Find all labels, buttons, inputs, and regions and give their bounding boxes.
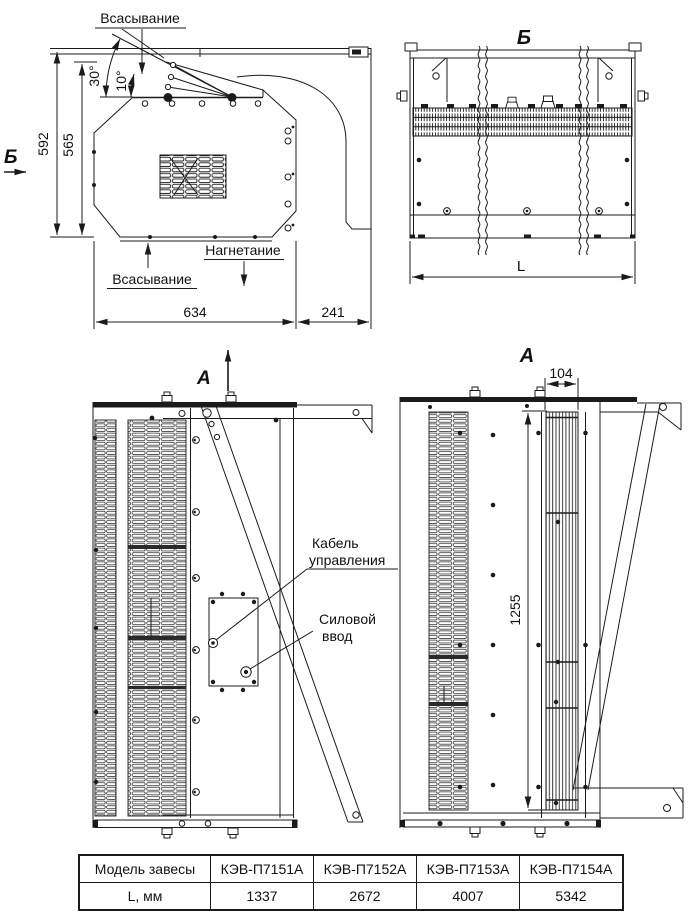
view-a-title: А — [519, 345, 534, 367]
dim-1255-text: 1255 — [507, 594, 523, 625]
va-brace — [573, 404, 660, 790]
control-cable-line2: управления — [309, 552, 385, 568]
right-bolt — [638, 91, 648, 101]
view-b-title: Б — [517, 27, 531, 49]
table-value-2: 2672 — [314, 883, 417, 911]
dim-104-text: 104 — [549, 365, 573, 381]
drawing-canvas: 30° 10° Всасывание — [0, 0, 700, 854]
power-inlet-line1: Силовой — [319, 611, 376, 627]
power-inlet-label: Силовой ввод — [250, 611, 376, 669]
suction-top-text: Всасывание — [100, 10, 180, 26]
front-body — [93, 402, 294, 828]
side-view: 30° 10° Всасывание — [4, 10, 371, 329]
dim-104: 104 — [545, 365, 578, 410]
dim-592-text: 592 — [35, 132, 51, 156]
view-b-marker: Б — [4, 147, 26, 172]
discharge-text: Нагнетание — [205, 242, 281, 258]
suction-bottom-text: Всасывание — [112, 271, 192, 287]
front-view: Кабель управления Силовой ввод — [93, 392, 398, 838]
table-header-row: Модель завесы КЭВ-П7151А КЭВ-П7152А КЭВ-… — [79, 855, 623, 883]
va-nozzle-grille — [546, 412, 578, 810]
dim-565: 565 — [60, 62, 97, 235]
front-bottom — [93, 815, 297, 838]
discharge-label: Нагнетание — [204, 242, 284, 286]
table-value-row: L, мм 1337 2672 4007 5342 — [79, 883, 623, 911]
left-bolt — [397, 91, 407, 101]
bottom-bolt-1 — [162, 828, 172, 838]
va-bottom-bolt-1 — [470, 827, 480, 837]
va-top-bracket — [600, 403, 681, 430]
angle-30-label: 30° — [86, 65, 102, 86]
table-value-4: 5342 — [520, 883, 624, 911]
va-left-grille — [429, 412, 468, 810]
table-header-model-3: КЭВ-П7153А — [417, 855, 520, 883]
view-b: Б — [397, 27, 648, 284]
view-a-marker: А — [196, 350, 228, 391]
top-bolt-2 — [226, 392, 236, 402]
va-top-bolt-2 — [535, 387, 545, 397]
dim-L: L — [410, 241, 635, 284]
model-table: Модель завесы КЭВ-П7151А КЭВ-П7152А КЭВ-… — [78, 854, 624, 911]
table-value-3: 4007 — [417, 883, 520, 911]
side-view-grille — [160, 155, 226, 198]
dim-241: 241 — [298, 232, 371, 329]
dim-565-text: 565 — [60, 133, 76, 157]
dim-634-text: 634 — [183, 304, 207, 320]
louver-assembly — [112, 34, 261, 106]
dim-L-text: L — [517, 258, 525, 275]
front-grilles — [95, 420, 186, 816]
va-top-bolt-1 — [470, 387, 480, 397]
dim-241-text: 241 — [321, 304, 345, 320]
view-b-marker-text: Б — [4, 147, 17, 168]
table-row-label: L, мм — [79, 883, 211, 911]
cable-gland-large — [541, 96, 555, 108]
view-a-marker-text: А — [196, 368, 211, 389]
table-header-model: Модель завесы — [79, 855, 211, 883]
va-bottom — [400, 813, 601, 837]
view-a: А 104 — [400, 345, 683, 837]
bottom-bolt-2 — [228, 828, 238, 838]
table-header-model-1: КЭВ-П7151А — [211, 855, 314, 883]
table-header-model-2: КЭВ-П7152А — [314, 855, 417, 883]
control-cable-line1: Кабель — [312, 535, 359, 551]
angle-10-label: 10° — [113, 70, 129, 91]
technical-drawing-page: 30° 10° Всасывание — [0, 0, 700, 921]
top-rail — [163, 405, 372, 433]
va-bottom-bolt-2 — [535, 827, 545, 837]
junction-box — [208, 592, 258, 692]
angle-dimensions: 30° 10° — [86, 39, 134, 97]
power-inlet-line2: ввод — [322, 628, 352, 644]
table-header-model-4: КЭВ-П7154А — [520, 855, 624, 883]
mounting-bracket-profile — [237, 75, 371, 229]
cable-gland-small — [506, 97, 519, 108]
table-value-1: 1337 — [211, 883, 314, 911]
top-bolt-1 — [162, 392, 172, 402]
suction-bottom-label: Всасывание — [107, 243, 197, 289]
